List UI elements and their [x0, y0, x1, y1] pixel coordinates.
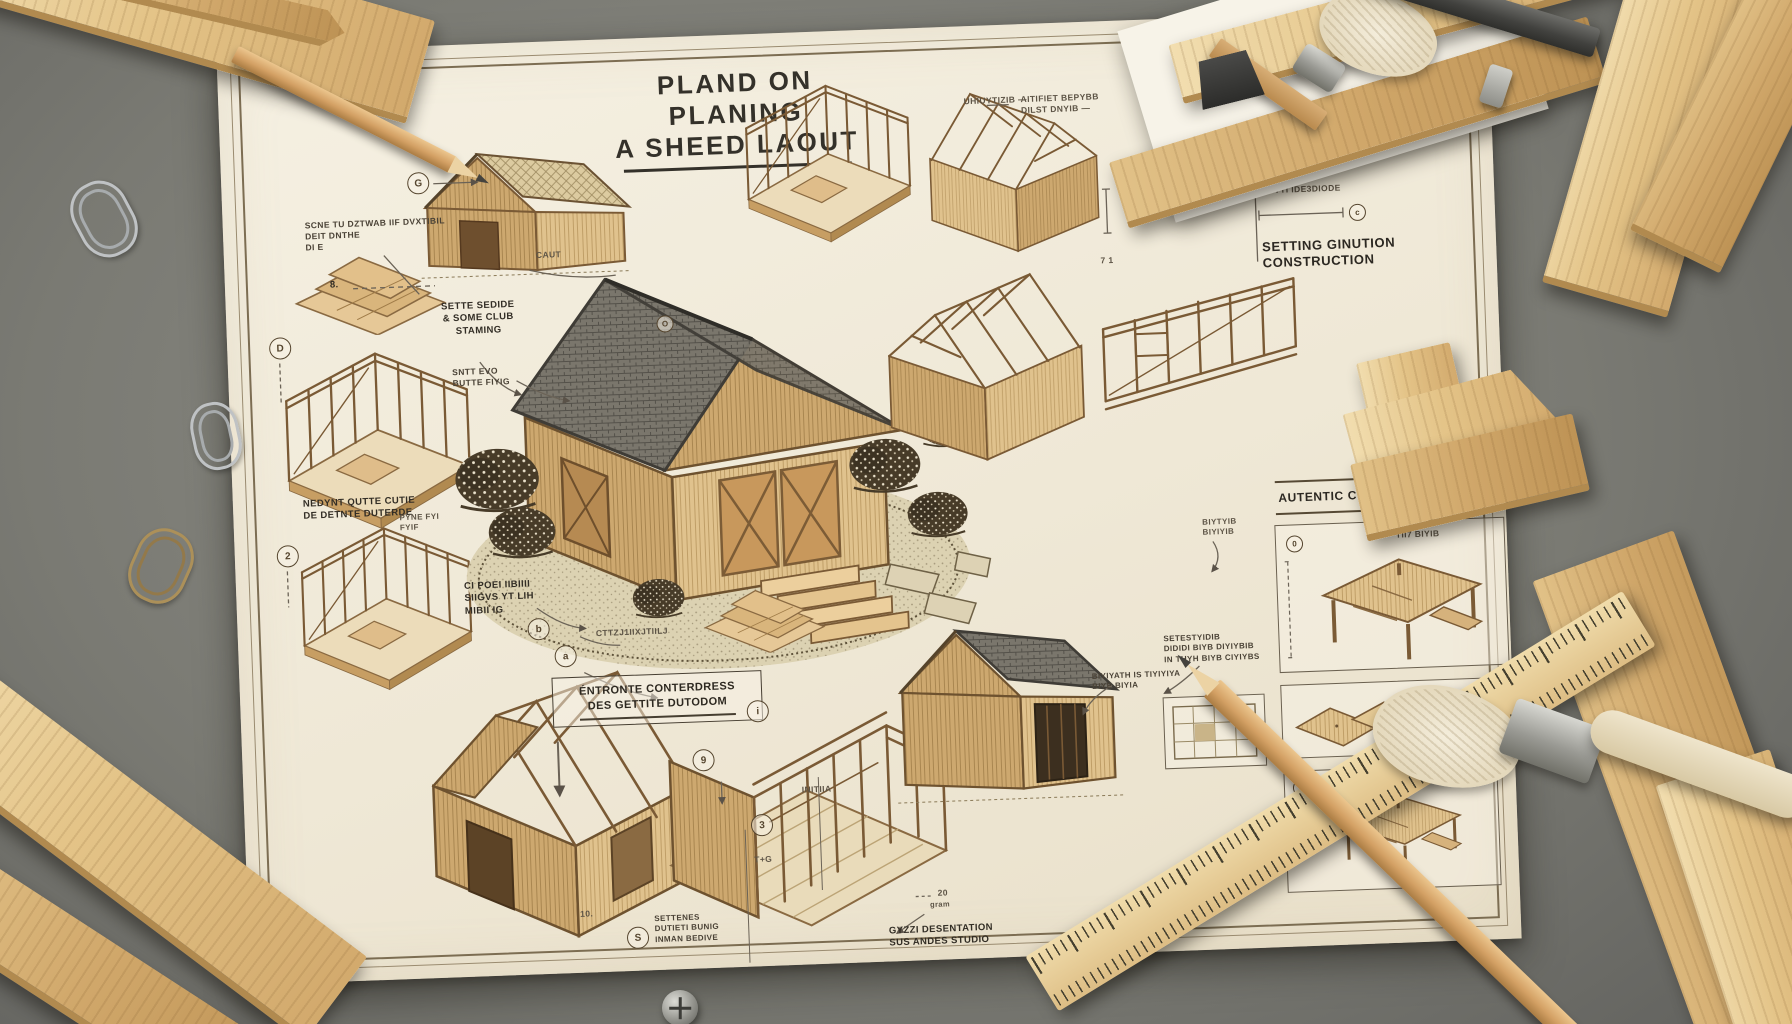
workbench-dim-line	[1283, 560, 1297, 660]
dimension-grain-20: 20	[937, 887, 948, 898]
sketch-workbench	[1310, 542, 1494, 667]
annotation-cc-block: CI POEI IIBIIII SIIGVS YT LIH MIBII IG	[464, 578, 535, 618]
callout-rule	[580, 713, 737, 720]
label-setting-construction: SETTING GINUTION CONSTRUCTION	[1262, 234, 1413, 271]
annotation-bc-small: INITIIA	[802, 784, 832, 796]
callout-box-label: ÉNTRONTE CONTERDRESS DES GETTITE DUTODOM	[551, 670, 763, 727]
paperclip-1	[60, 171, 148, 267]
workbench-panel: TII7 BIYIB 0	[1274, 517, 1509, 673]
annotation-snt-block: SNTT EVO BUTTE FIYIG	[452, 365, 510, 389]
dimension-10: 10.	[580, 908, 593, 920]
annotation-line: MIBII IG	[465, 603, 535, 618]
annotation-rb2-block: BIYIYATH IS TIYIYIYA BIYE BIYIA	[1092, 669, 1181, 693]
annotation-line: PYNE FYI	[399, 512, 439, 524]
annotation-tg: T+G	[754, 854, 772, 866]
annotation-line: FYIF	[400, 522, 440, 534]
dimension-8: 8.	[330, 279, 339, 292]
marker-circle-0: 0	[1286, 535, 1304, 553]
annotation-midleft-block: SETTE SEDIDE & SOME CLUB STAMING	[422, 298, 535, 339]
paperclip-brass	[119, 519, 203, 612]
metal-screw-bottom	[662, 990, 698, 1024]
annotation-topleft-block: SCNE TU DZTWAB IIF DVXTIBIL DEIT DNTHE D…	[305, 215, 446, 253]
dimension-caut: CAUT	[536, 249, 562, 261]
annotation-topright-a: UHIUYTIZIB —	[963, 94, 1027, 107]
dimension-71: 7 1	[1100, 255, 1113, 267]
annotation-line: BUTTE FIYIG	[452, 376, 510, 389]
annotation-bottomcenter-block: GYZZI DESENTATION SUS ANDES STUDIO	[889, 922, 994, 950]
annotation-line: SIIGVS YT LIH	[464, 591, 534, 606]
desk-scene: PLAND ON PLANING A SHEED LAOUT	[0, 0, 1792, 1024]
annotation-line: BIYIYIB	[1202, 527, 1237, 539]
annotation-bottomleft-block: SETTENES DUTIETI BUNIG INMAN BEDIVE	[654, 912, 719, 946]
dimension-grain-word: gram	[930, 899, 950, 909]
annotation-topright-b: AITIFIET BEPYBB DILST DNYIB —	[1020, 91, 1113, 116]
annotation-bra: BIYTYIB BIYIYIB	[1202, 517, 1237, 539]
annotation-pyne: PYNE FYI FYIF	[399, 512, 439, 534]
